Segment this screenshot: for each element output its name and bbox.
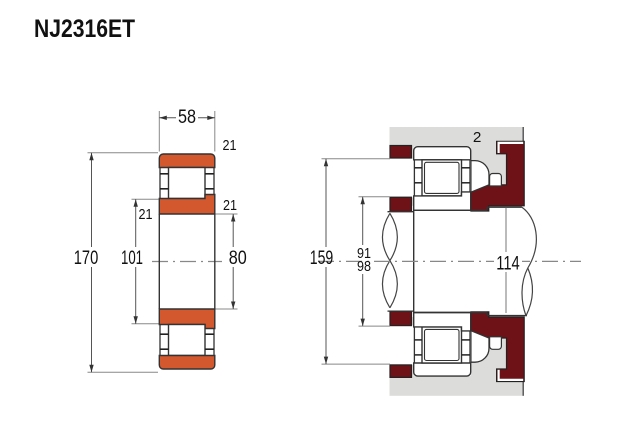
svg-text:98: 98	[357, 258, 371, 275]
svg-text:170: 170	[74, 247, 99, 269]
svg-text:159: 159	[310, 247, 334, 269]
svg-text:2: 2	[473, 129, 482, 146]
svg-text:21: 21	[223, 197, 237, 214]
svg-text:101: 101	[121, 247, 143, 269]
svg-text:114: 114	[496, 253, 520, 275]
svg-text:NJ2316ET: NJ2316ET	[34, 15, 135, 43]
svg-text:58: 58	[178, 106, 196, 128]
svg-text:80: 80	[229, 247, 247, 269]
svg-text:21: 21	[223, 137, 237, 154]
svg-text:21: 21	[139, 206, 153, 223]
